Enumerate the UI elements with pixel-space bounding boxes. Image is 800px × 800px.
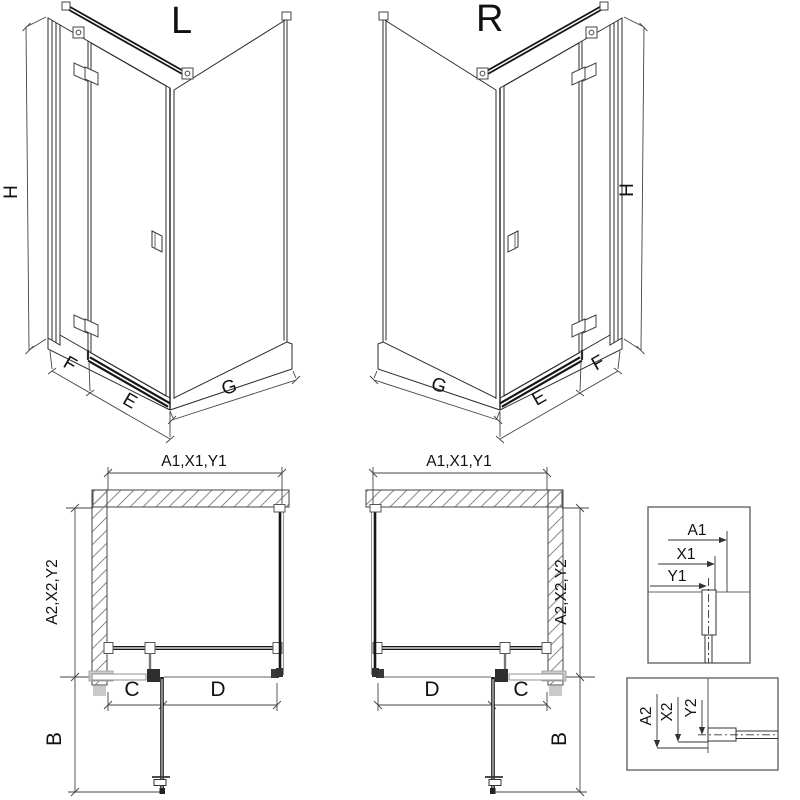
plan-right-dim-d: D — [424, 678, 439, 701]
detail-top-label-y1: Y1 — [668, 568, 687, 585]
iso-enclosure-left — [23, 2, 301, 443]
plan-left-dim-d: D — [210, 678, 225, 701]
detail-top-label-x1: X1 — [677, 546, 696, 563]
detail-bottom-label-a2: A2 — [638, 707, 655, 726]
iso-left-dim-e: E — [119, 389, 140, 414]
iso-left-dim-g: G — [219, 375, 240, 400]
iso-left-title: L — [171, 0, 192, 42]
detail-box-bottom: A2 X2 Y2 — [627, 678, 778, 770]
plan-left-side-wall — [92, 490, 107, 685]
iso-view-right: R H G E F — [370, 0, 648, 443]
detail-bottom-label-x2: X2 — [659, 703, 676, 722]
iso-right-title: R — [476, 0, 503, 40]
plan-left-dim-depth: A2,X2,Y2 — [44, 559, 61, 625]
iso-right-dim-e: E — [529, 386, 550, 411]
plan-right-dim-c: C — [513, 678, 528, 701]
iso-view-left: L H F E G — [1, 0, 300, 443]
detail-top-label-a1: A1 — [688, 522, 707, 539]
plan-right-dim-b: B — [548, 732, 571, 746]
technical-drawing-page: L H F E G R H G E F A1,X1,Y1 A2,X2,Y2 C … — [0, 0, 800, 800]
detail-bottom-label-y2: Y2 — [683, 699, 700, 718]
iso-left-dim-height: H — [1, 185, 22, 199]
plan-view-right: A1,X1,Y1 A2,X2,Y2 D C B — [366, 453, 595, 796]
iso-right-dim-g: G — [428, 373, 449, 398]
plan-left-top-wall — [93, 490, 289, 507]
plan-right-top-wall — [366, 490, 562, 507]
plan-left-dim-width: A1,X1,Y1 — [161, 453, 227, 470]
iso-right-dim-f: F — [588, 351, 609, 375]
plan-left-dim-b: B — [43, 732, 66, 746]
plan-left-wall-shadow — [93, 686, 106, 696]
plan-left-dim-c: C — [124, 678, 139, 701]
plan-right-dim-width: A1,X1,Y1 — [426, 453, 492, 470]
plan-view-left: A1,X1,Y1 A2,X2,Y2 C D B — [43, 453, 289, 796]
plan-right-wall-shadow — [549, 686, 562, 696]
drawing-canvas: L H F E G R H G E F A1,X1,Y1 A2,X2,Y2 C … — [0, 0, 800, 800]
detail-box-top: A1 X1 Y1 — [648, 507, 750, 663]
plan-right-dim-depth: A2,X2,Y2 — [553, 559, 570, 625]
iso-enclosure-right — [370, 2, 648, 443]
iso-right-dim-height: H — [617, 183, 638, 197]
